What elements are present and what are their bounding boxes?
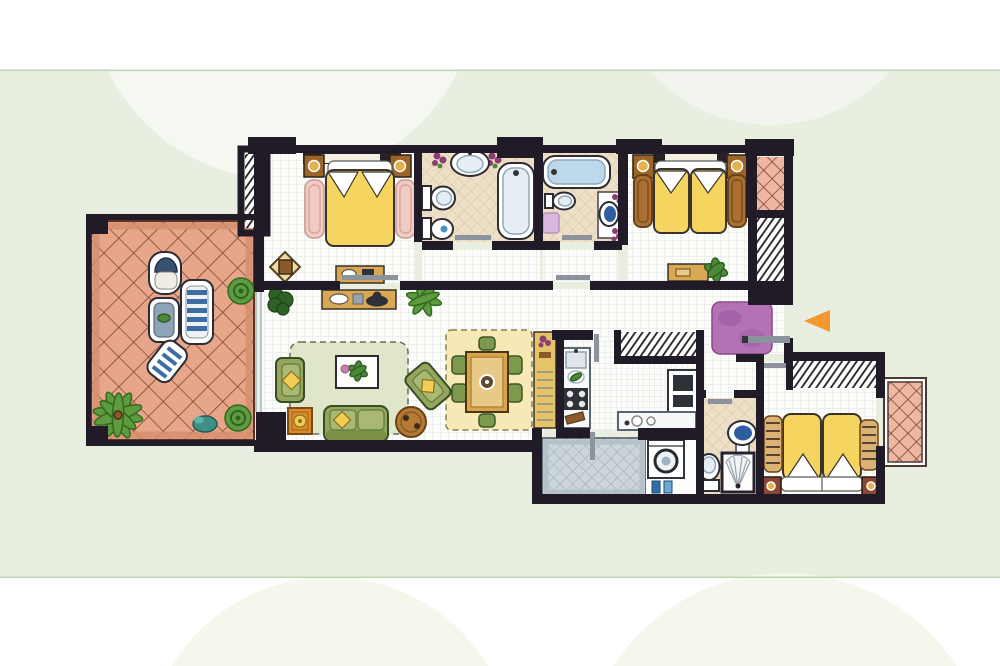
armchair-top-left bbox=[276, 358, 304, 402]
bedside-rug-left bbox=[634, 175, 652, 227]
potted-plant-terrace-2 bbox=[225, 405, 251, 431]
bedroom2-door-leaf bbox=[556, 275, 590, 280]
sun-lounger bbox=[181, 280, 213, 344]
floor-plan-page bbox=[0, 0, 1000, 666]
nightstand-left bbox=[304, 155, 324, 177]
orange-side-table bbox=[288, 408, 312, 434]
fridge bbox=[668, 370, 698, 416]
cooktop bbox=[564, 388, 588, 410]
entry-hall-items bbox=[712, 302, 772, 354]
bathtub-horizontal bbox=[543, 156, 610, 188]
potted-plant-terrace-1 bbox=[228, 278, 254, 304]
toilet-1 bbox=[422, 186, 455, 210]
bathtub-vertical bbox=[498, 163, 534, 239]
striped-rug-left bbox=[764, 416, 782, 472]
bedside-mat-left bbox=[305, 180, 324, 238]
bedroom1-door-leaf bbox=[342, 275, 398, 280]
panel-bottom-edge bbox=[0, 577, 1000, 579]
bath3-door-leaf bbox=[708, 399, 732, 404]
bedroom3-furniture bbox=[762, 414, 881, 495]
panel-top-edge bbox=[0, 70, 1000, 72]
bath1-door-leaf bbox=[455, 235, 491, 240]
lounge-chair-hood bbox=[149, 252, 181, 294]
entry-door-leaf bbox=[742, 336, 790, 343]
bath-mat bbox=[543, 213, 559, 233]
bedside-mat-right bbox=[396, 180, 415, 238]
dining-area bbox=[446, 330, 556, 430]
sideboard bbox=[534, 332, 556, 428]
kitchen-sink bbox=[566, 352, 586, 368]
terrace-door-track bbox=[255, 292, 257, 412]
bedside-rug-right bbox=[728, 175, 746, 227]
toilet-2 bbox=[545, 193, 575, 210]
floor-plan-drawing bbox=[0, 0, 1000, 666]
utility-door-leaf bbox=[590, 432, 595, 460]
bedroom-console bbox=[336, 266, 384, 283]
bath2-door-leaf bbox=[562, 235, 592, 240]
dining-table bbox=[466, 352, 508, 412]
shower-shell bbox=[722, 453, 754, 492]
washing-machine bbox=[648, 440, 684, 478]
bedroom3-door-leaf bbox=[764, 363, 786, 368]
sofa bbox=[324, 406, 388, 442]
lounge-chair-table bbox=[149, 298, 179, 342]
nightstand-3-left bbox=[762, 477, 781, 495]
hall-console bbox=[322, 290, 396, 309]
kitchen-counter-bottom bbox=[618, 412, 696, 430]
balcony-top-right-floor bbox=[754, 157, 784, 212]
kitchen-door-leaf bbox=[594, 334, 599, 362]
bidet bbox=[422, 218, 453, 239]
purple-entry-rug bbox=[712, 302, 772, 354]
coffee-table bbox=[336, 356, 378, 388]
small-teal-plant bbox=[193, 416, 217, 432]
kitchen-counter-left bbox=[562, 348, 590, 428]
washbasin-1 bbox=[451, 150, 489, 176]
balcony-bedroom3-floor bbox=[884, 378, 926, 466]
round-side-table bbox=[396, 407, 426, 437]
console-bedroom2 bbox=[668, 264, 708, 281]
striped-rug-right bbox=[860, 420, 878, 470]
